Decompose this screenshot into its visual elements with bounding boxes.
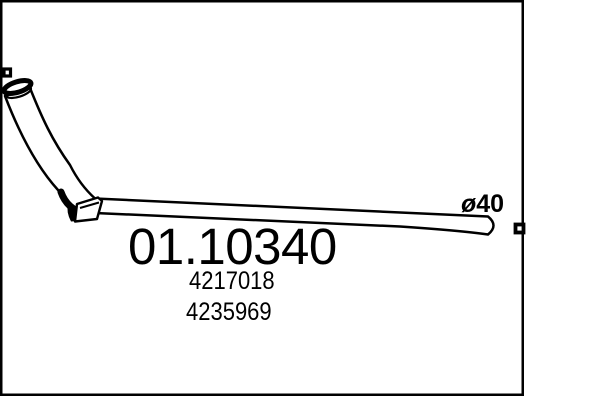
reference-number: 4217018 [189, 269, 275, 294]
part-number-label: 01.10340 [128, 221, 337, 272]
reference-number: 4235969 [186, 300, 272, 325]
exhaust-pipe-diagram [0, 0, 600, 400]
diameter-label: ø40 [461, 192, 504, 217]
connection-marker-right [516, 225, 524, 233]
technical-drawing: ø40 01.10340 4217018 4235969 [0, 0, 600, 400]
connection-marker-left [4, 69, 11, 76]
